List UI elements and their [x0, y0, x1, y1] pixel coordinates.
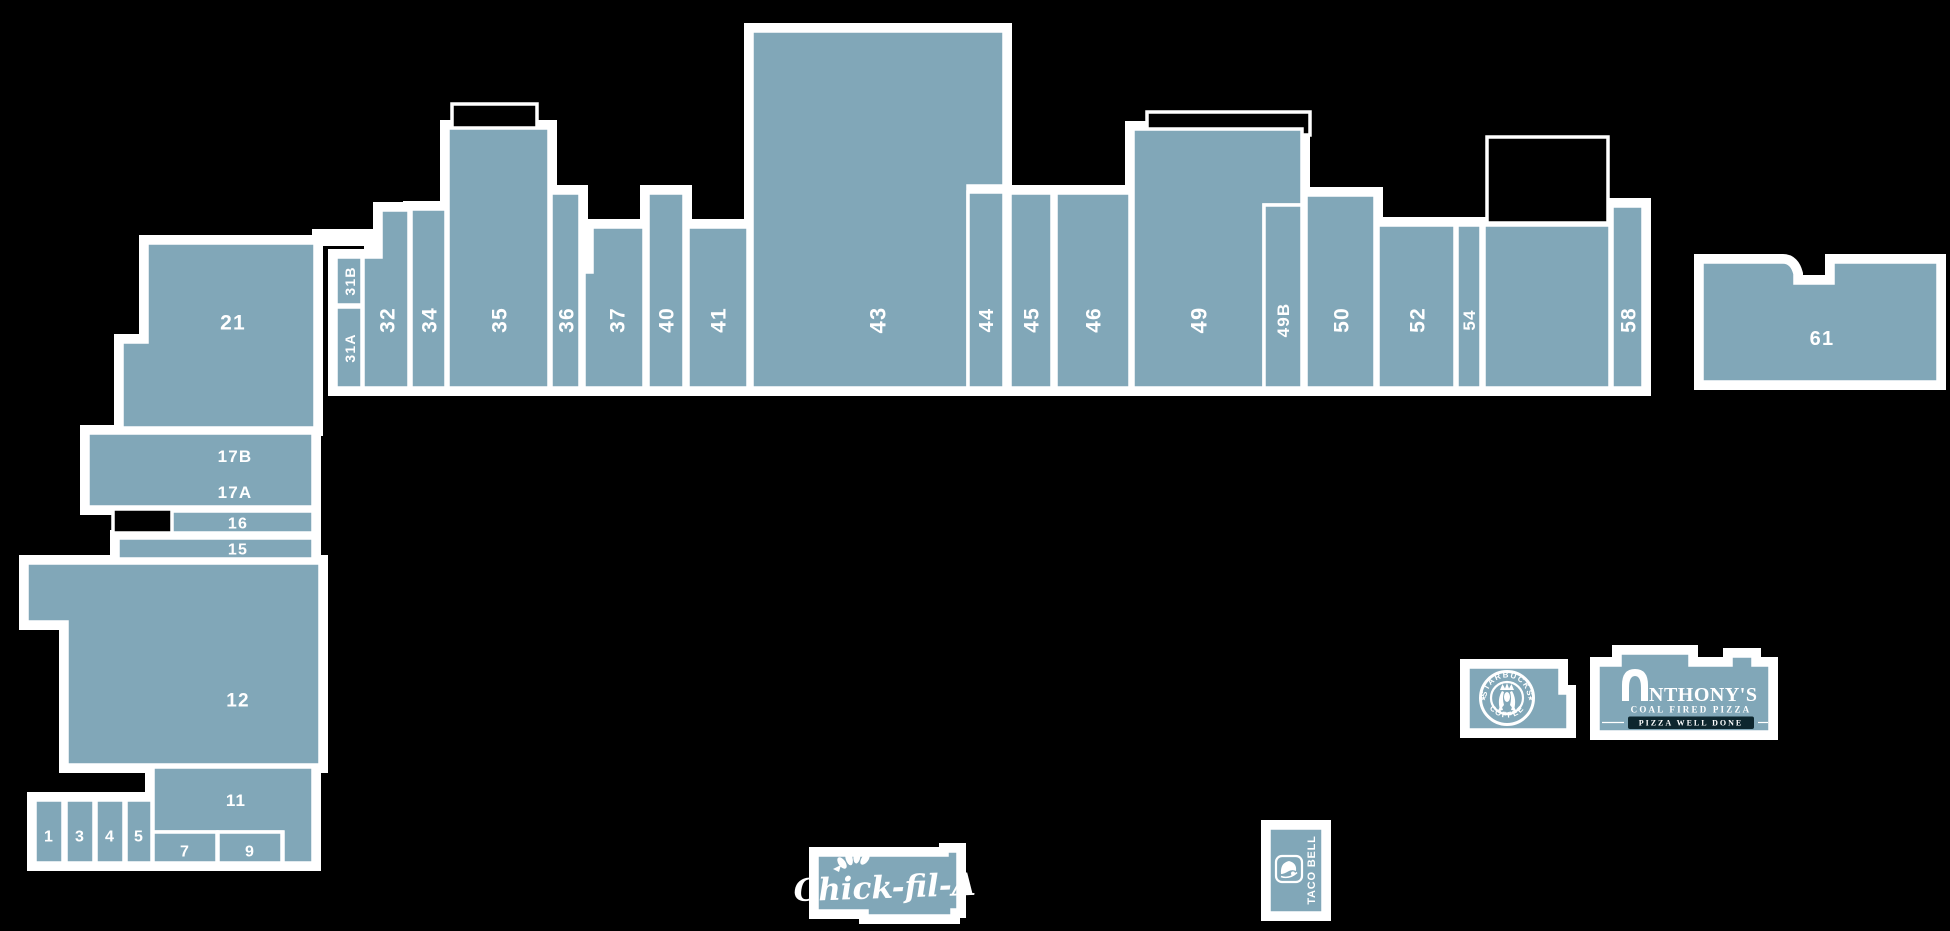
unit-label-15: 15 — [228, 542, 248, 559]
unit-label-12: 12 — [226, 691, 250, 712]
unit-label-41: 41 — [707, 307, 730, 333]
unit-36[interactable] — [551, 193, 580, 388]
unit-54[interactable] — [1457, 225, 1481, 388]
unit-label-46: 46 — [1082, 307, 1105, 333]
unit-label-54: 54 — [1460, 309, 1479, 330]
anthonys-banner-text: PIZZA WELL DONE — [1639, 719, 1744, 728]
unit-label-16: 16 — [228, 516, 248, 533]
unit-label-1: 1 — [44, 829, 54, 846]
unit-46[interactable] — [1056, 193, 1130, 388]
unit-label-35: 35 — [488, 307, 511, 333]
unit-label-43: 43 — [866, 307, 891, 334]
unit-58[interactable] — [1612, 206, 1643, 388]
unit-label-61: 61 — [1810, 328, 1835, 350]
unit-17[interactable] — [88, 433, 313, 507]
unit-label-9: 9 — [245, 844, 255, 861]
unit-52[interactable] — [1378, 225, 1455, 388]
anthonys-name-text: NTHONY'S — [1649, 684, 1757, 706]
unit-label-58: 58 — [1617, 307, 1640, 333]
unit-label-21: 21 — [220, 311, 246, 334]
unit-label-5: 5 — [134, 829, 144, 846]
courtyard-0 — [1487, 137, 1608, 223]
starbucks-logo[interactable]: STARBUCKS COFFEE ★ ★ — [1479, 670, 1534, 724]
unit-label-36: 36 — [555, 307, 578, 333]
unit-21[interactable] — [122, 243, 315, 428]
unit-label-40: 40 — [655, 307, 678, 333]
unit-50[interactable] — [1306, 195, 1375, 388]
unit-45[interactable] — [1010, 193, 1052, 388]
unit-49B[interactable] — [1264, 205, 1302, 388]
unit-44[interactable] — [968, 192, 1004, 388]
unit-43[interactable] — [752, 31, 1004, 388]
unit-label-17: 17A — [218, 483, 253, 502]
unit-label-32: 32 — [376, 307, 399, 333]
unit-label-3: 3 — [75, 829, 85, 846]
unit-15[interactable] — [118, 538, 313, 559]
unit-label-49B: 49B — [1274, 303, 1293, 338]
unit-label-11: 11 — [226, 791, 246, 810]
unit-34[interactable] — [411, 209, 446, 388]
unit-56[interactable] — [1484, 225, 1610, 388]
chickfila-name-text: Chick-fil-A — [793, 867, 976, 909]
tacobell-name-text: TACO BELL — [1306, 835, 1318, 904]
starbucks-star-right-icon: ★ — [1527, 694, 1533, 702]
unit-35[interactable] — [448, 128, 549, 388]
courtyard-2 — [452, 104, 537, 130]
site-plan-stage: 2117B17A1615121179134531A31B323435363740… — [0, 0, 1950, 931]
courtyard-3 — [113, 509, 174, 533]
unit-label-44: 44 — [976, 308, 998, 333]
unit-label-50: 50 — [1330, 307, 1353, 333]
unit-12[interactable] — [27, 563, 320, 765]
unit-label-17: 17B — [218, 447, 253, 466]
site-map-svg: 2117B17A1615121179134531A31B323435363740… — [0, 0, 1950, 931]
building-layer — [27, 31, 1938, 916]
unit-label-45: 45 — [1020, 307, 1043, 333]
unit-40[interactable] — [648, 193, 684, 388]
unit-label-7: 7 — [180, 844, 190, 861]
unit-label-49: 49 — [1187, 307, 1212, 334]
unit-label-31A: 31A — [342, 333, 358, 362]
unit-label-31B: 31B — [342, 266, 358, 295]
unit-label-34: 34 — [418, 307, 441, 333]
unit-label-37: 37 — [606, 307, 629, 333]
unit-label-52: 52 — [1406, 307, 1429, 333]
unit-label-4: 4 — [105, 829, 115, 846]
anthonys-tagline-text: COAL FIRED PIZZA — [1631, 705, 1752, 715]
starbucks-star-left-icon: ★ — [1480, 694, 1486, 702]
